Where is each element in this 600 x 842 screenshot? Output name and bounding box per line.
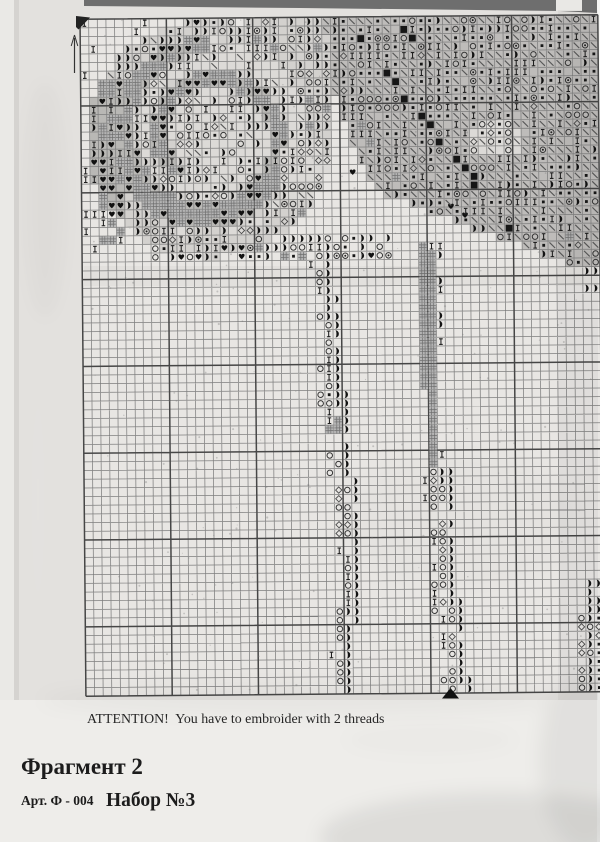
svg-text:ATTENTION! You have to embroi: ATTENTION! You have to embroider with 2 … [87, 712, 384, 727]
svg-text:Фрагмент 2: Фрагмент 2 [21, 754, 143, 779]
svg-text:Арт. Ф - 004: Арт. Ф - 004 [21, 793, 94, 808]
svg-text:Набор №3: Набор №3 [106, 790, 195, 811]
